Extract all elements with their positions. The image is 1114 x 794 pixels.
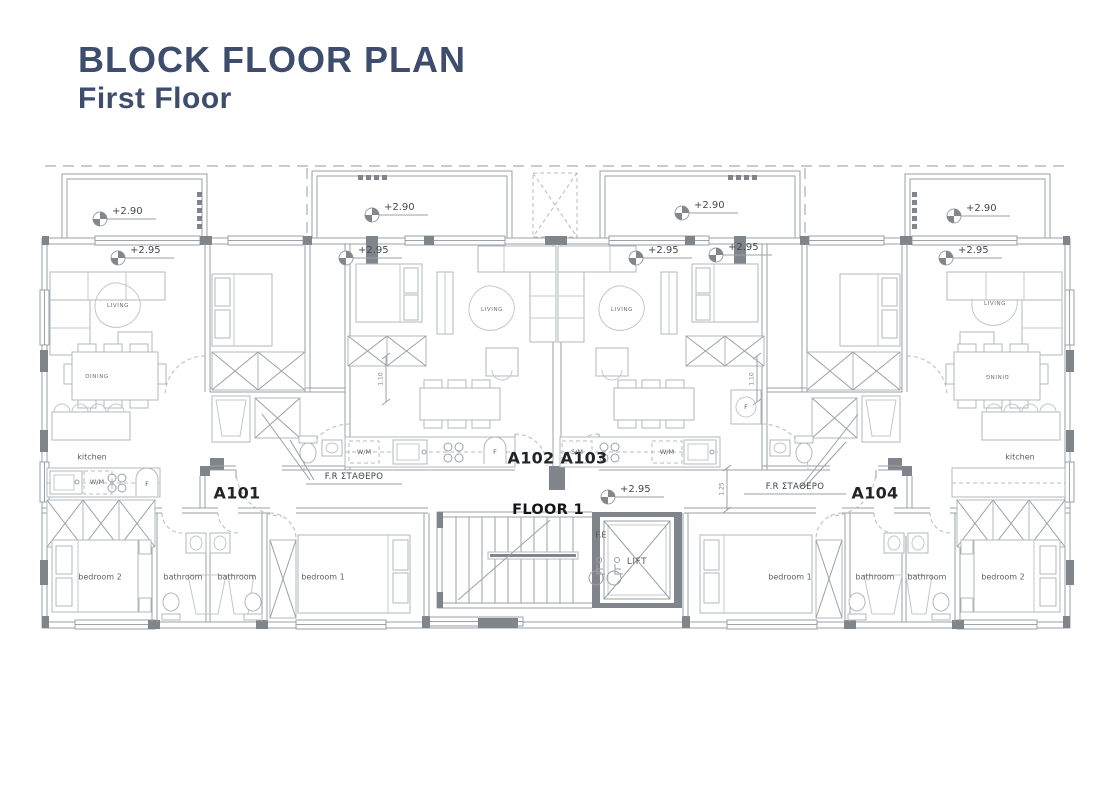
annotation-fixed-frame: F.R ΣΤΑΘΕΡΟ — [766, 482, 824, 492]
room-label-bedroom2: bedroom 2 — [981, 573, 1024, 582]
floor-level-label: +2.95 — [958, 245, 989, 256]
floor-level-label: +2.95 — [620, 484, 651, 495]
floor-core-label: FLOOR 1 — [512, 502, 584, 518]
room-label-bedroom1: bedroom 1 — [301, 573, 344, 582]
walls-and-windows — [40, 236, 1074, 629]
appliance-label-fridge: F — [145, 480, 149, 488]
stairs — [437, 512, 592, 608]
apartment-label-a104: A104 — [852, 484, 899, 503]
room-label-living: LIVING — [481, 307, 503, 313]
room-label-bedroom2: bedroom 2 — [78, 573, 121, 582]
dimension-label: 1.25 — [719, 482, 726, 495]
room-label-kitchen: kitchen — [77, 453, 106, 462]
floor-plan-drawing — [0, 0, 1114, 794]
page: BLOCK FLOOR PLAN First Floor +2.90 +2.90… — [0, 0, 1114, 794]
apartment-label-a103: A103 — [561, 449, 608, 468]
room-label-living: LIVING — [984, 301, 1006, 307]
floor-level-label: +2.95 — [130, 245, 161, 256]
furniture — [47, 246, 1065, 620]
dimension-label: 1.10 — [749, 372, 756, 385]
balcony-level-label: +2.90 — [112, 206, 143, 217]
appliance-label-wm: W/M — [90, 478, 104, 486]
room-label-bedroom1: bedroom 1 — [768, 573, 811, 582]
floor-level-label: +2.95 — [358, 245, 389, 256]
room-label-bathroom: bathroom — [218, 573, 257, 582]
balcony-level-label: +2.90 — [384, 202, 415, 213]
room-label-kitchen: kitchen — [1005, 453, 1034, 462]
floor-level-label: +2.95 — [648, 245, 679, 256]
room-label-living: LIVING — [107, 303, 129, 309]
fire-escape-label: F.E — [596, 531, 607, 540]
balcony-level-label: +2.90 — [694, 200, 725, 211]
room-label-bathroom: bathroom — [164, 573, 203, 582]
annotation-fixed-frame: F.R ΣΤΑΘΕΡΟ — [325, 472, 383, 482]
dimension-label: 1.10 — [378, 372, 385, 385]
appliance-label-fridge: F — [744, 403, 748, 411]
room-label-living: LIVING — [611, 307, 633, 313]
room-label-dining: DINING — [85, 374, 109, 380]
floor-level-label: +2.95 — [728, 242, 759, 253]
wheelchair-icon — [607, 558, 623, 586]
balconies — [62, 171, 1050, 238]
apartment-label-a101: A101 — [214, 484, 261, 503]
appliance-label-wm: W/M — [660, 448, 674, 456]
room-label-dining: DINING — [985, 373, 1009, 379]
room-label-bathroom: bathroom — [908, 573, 947, 582]
lift-label: LIFT — [627, 557, 647, 567]
appliance-label-wm: W/M — [357, 448, 371, 456]
room-label-bathroom: bathroom — [856, 573, 895, 582]
appliance-label-sm: S/M — [571, 448, 583, 456]
appliance-label-fridge: F — [493, 448, 497, 456]
apartment-label-a102: A102 — [508, 449, 555, 468]
balcony-level-label: +2.90 — [966, 203, 997, 214]
